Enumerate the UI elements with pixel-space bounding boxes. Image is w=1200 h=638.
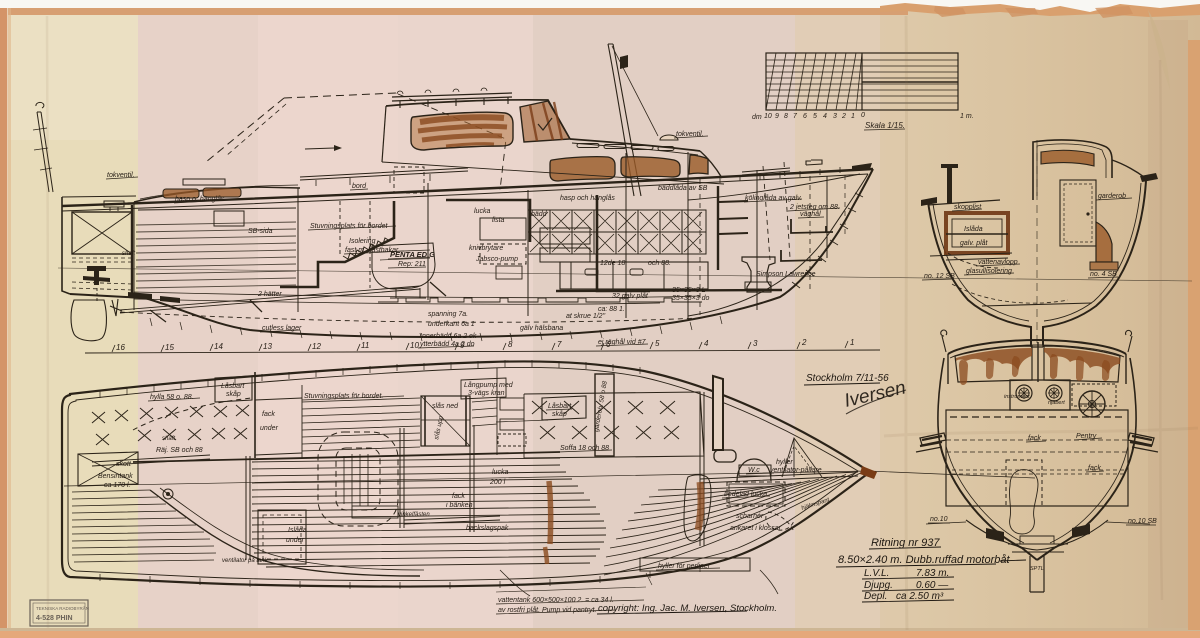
svg-text:galv. plåt: galv. plåt <box>960 239 989 247</box>
svg-text:Simpson Lawrence: Simpson Lawrence <box>756 271 816 278</box>
svg-text:35×35×3 L: 35×35×3 L <box>672 287 706 294</box>
svg-text:hasp och hänglås: hasp och hänglås <box>560 194 615 202</box>
svg-text:3: 3 <box>753 339 758 348</box>
svg-text:Islåda: Islåda <box>964 225 983 233</box>
svg-text:6: 6 <box>803 113 807 120</box>
svg-text:SB-sida: SB-sida <box>248 228 273 235</box>
svg-text:av rostfri plåt. Pump vid pan: av rostfri plåt. Pump vid pantryt. <box>498 606 596 614</box>
svg-text:13: 13 <box>263 342 272 351</box>
svg-text:fack: fack <box>1028 435 1041 442</box>
svg-text:hyller: hyller <box>776 459 793 466</box>
svg-text:skåp: skåp <box>552 410 567 418</box>
svg-text:5: 5 <box>655 339 660 348</box>
svg-text:Depl.: Depl. <box>864 591 887 602</box>
svg-text:och 88.: och 88. <box>648 260 671 267</box>
svg-text:skåp: skåp <box>226 390 241 398</box>
svg-text:bäddlåda av SB: bäddlåda av SB <box>658 184 708 192</box>
svg-text:fack: fack <box>452 493 465 500</box>
svg-text:at skrue 1/2": at skrue 1/2" <box>566 313 606 320</box>
svg-text:no.10: no.10 <box>930 516 948 523</box>
svg-text:bädd: bädd <box>531 211 548 218</box>
svg-text:200 l: 200 l <box>489 479 506 486</box>
svg-text:3-vägs kran: 3-vägs kran <box>468 390 505 397</box>
svg-text:Låsbart: Låsbart <box>221 382 245 390</box>
svg-text:4: 4 <box>823 113 827 120</box>
svg-text:1 m.: 1 m. <box>960 113 974 120</box>
svg-text:14: 14 <box>214 342 223 351</box>
svg-text:3: 3 <box>833 113 837 120</box>
svg-text:ankaret i klossar: ankaret i klossar <box>730 525 782 532</box>
svg-text:ventilator på tank: ventilator på tank <box>222 557 269 564</box>
svg-text:4-528 PHIN: 4-528 PHIN <box>36 615 73 622</box>
svg-text:Stuvningsplats för bordet.: Stuvningsplats för bordet. <box>304 393 383 400</box>
svg-text:2 jetsteg om 88.: 2 jetsteg om 88. <box>789 204 840 211</box>
svg-text:gälv hälsbana: gälv hälsbana <box>520 325 563 332</box>
svg-text:15: 15 <box>165 343 174 352</box>
svg-text:lucka: lucka <box>492 469 508 476</box>
svg-text:10: 10 <box>764 113 772 120</box>
svg-text:32 galv plåt: 32 galv plåt <box>612 292 649 300</box>
svg-text:10: 10 <box>410 341 419 350</box>
svg-text:11: 11 <box>361 341 369 350</box>
svg-text:TEKNISKA RADIOBYRÅN: TEKNISKA RADIOBYRÅN <box>36 605 89 611</box>
svg-text:2: 2 <box>841 113 846 120</box>
svg-text:12de 18.: 12de 18. <box>600 260 627 267</box>
svg-text:Rep: 211: Rep: 211 <box>398 261 426 268</box>
svg-text:Skala 1/15.: Skala 1/15. <box>865 121 905 130</box>
svg-text:spanning 7a.: spanning 7a. <box>428 311 468 318</box>
svg-text:shaft: shaft <box>162 436 175 442</box>
svg-text:shaft: shaft <box>122 251 135 257</box>
svg-text:no.10 SB: no.10 SB <box>1128 518 1157 525</box>
svg-text:Innerbädd 6a 2 ek: Innerbädd 6a 2 ek <box>420 333 477 340</box>
svg-text:knivbrytare: knivbrytare <box>469 245 503 252</box>
svg-text:2: 2 <box>801 338 807 347</box>
svg-text:instrument: instrument <box>1004 394 1030 400</box>
svg-text:Isolering: Isolering <box>349 238 376 245</box>
svg-text:0: 0 <box>861 112 865 119</box>
svg-text:5: 5 <box>813 113 817 120</box>
svg-text:fack: fack <box>262 411 275 418</box>
svg-text:ca: 88 1.: ca: 88 1. <box>598 306 625 313</box>
svg-text:under: under <box>260 425 279 432</box>
svg-text:lista: lista <box>492 217 505 224</box>
svg-text:35×35×3 do: 35×35×3 do <box>672 295 709 302</box>
svg-text:njäbert: njäbert <box>1048 400 1065 406</box>
svg-text:i bänken: i bänken <box>446 502 473 509</box>
svg-text:4: 4 <box>704 339 709 348</box>
svg-text:1: 1 <box>851 113 855 120</box>
svg-text:W.c: W.c <box>748 467 760 474</box>
svg-text:7: 7 <box>557 340 562 349</box>
svg-text:SPTL: SPTL <box>1030 566 1044 572</box>
svg-text:8: 8 <box>508 340 513 349</box>
svg-text:12: 12 <box>312 342 321 351</box>
svg-text:Stockholm 7/11-56: Stockholm 7/11-56 <box>806 373 889 384</box>
svg-text:scharnér: scharnér <box>736 513 764 520</box>
svg-text:underkant 6a 1: underkant 6a 1 <box>428 321 475 328</box>
svg-text:Stuvningsplats för bordet: Stuvningsplats för bordet <box>310 223 388 230</box>
svg-text:under: under <box>286 537 305 544</box>
svg-text:8: 8 <box>784 113 788 120</box>
svg-text:9: 9 <box>775 113 779 120</box>
svg-text:16: 16 <box>116 343 125 352</box>
svg-text:slås ned: slås ned <box>432 402 459 410</box>
svg-text:Räj. SB och 88: Räj. SB och 88 <box>156 447 203 454</box>
svg-text:Långpump med: Långpump med <box>464 381 514 389</box>
svg-text:backslagspak: backslagspak <box>466 525 509 532</box>
svg-text:Islåda: Islåda <box>288 526 307 534</box>
svg-text:2 hätter: 2 hätter <box>257 291 282 298</box>
svg-text:vattentank 600×500×100 2. = ca: vattentank 600×500×100 2. = ca 34 l. <box>498 597 614 604</box>
svg-text:skott: skott <box>116 461 132 468</box>
svg-text:1: 1 <box>850 338 854 347</box>
svg-text:vinkelfästen: vinkelfästen <box>398 512 430 518</box>
svg-text:väghål: väghål <box>800 210 821 218</box>
svg-text:ventilator-pållare: ventilator-pållare <box>770 466 822 474</box>
svg-text:lucka: lucka <box>474 208 490 215</box>
svg-text:Jabsco-pump: Jabsco-pump <box>475 256 518 263</box>
svg-text:Djupg.: Djupg. <box>864 580 893 591</box>
svg-text:dm: dm <box>752 114 762 121</box>
svg-text:L.V.L.: L.V.L. <box>864 568 889 579</box>
svg-text:Bensintank: Bensintank <box>98 473 133 480</box>
svg-text:ca 170 l.: ca 170 l. <box>104 482 131 489</box>
